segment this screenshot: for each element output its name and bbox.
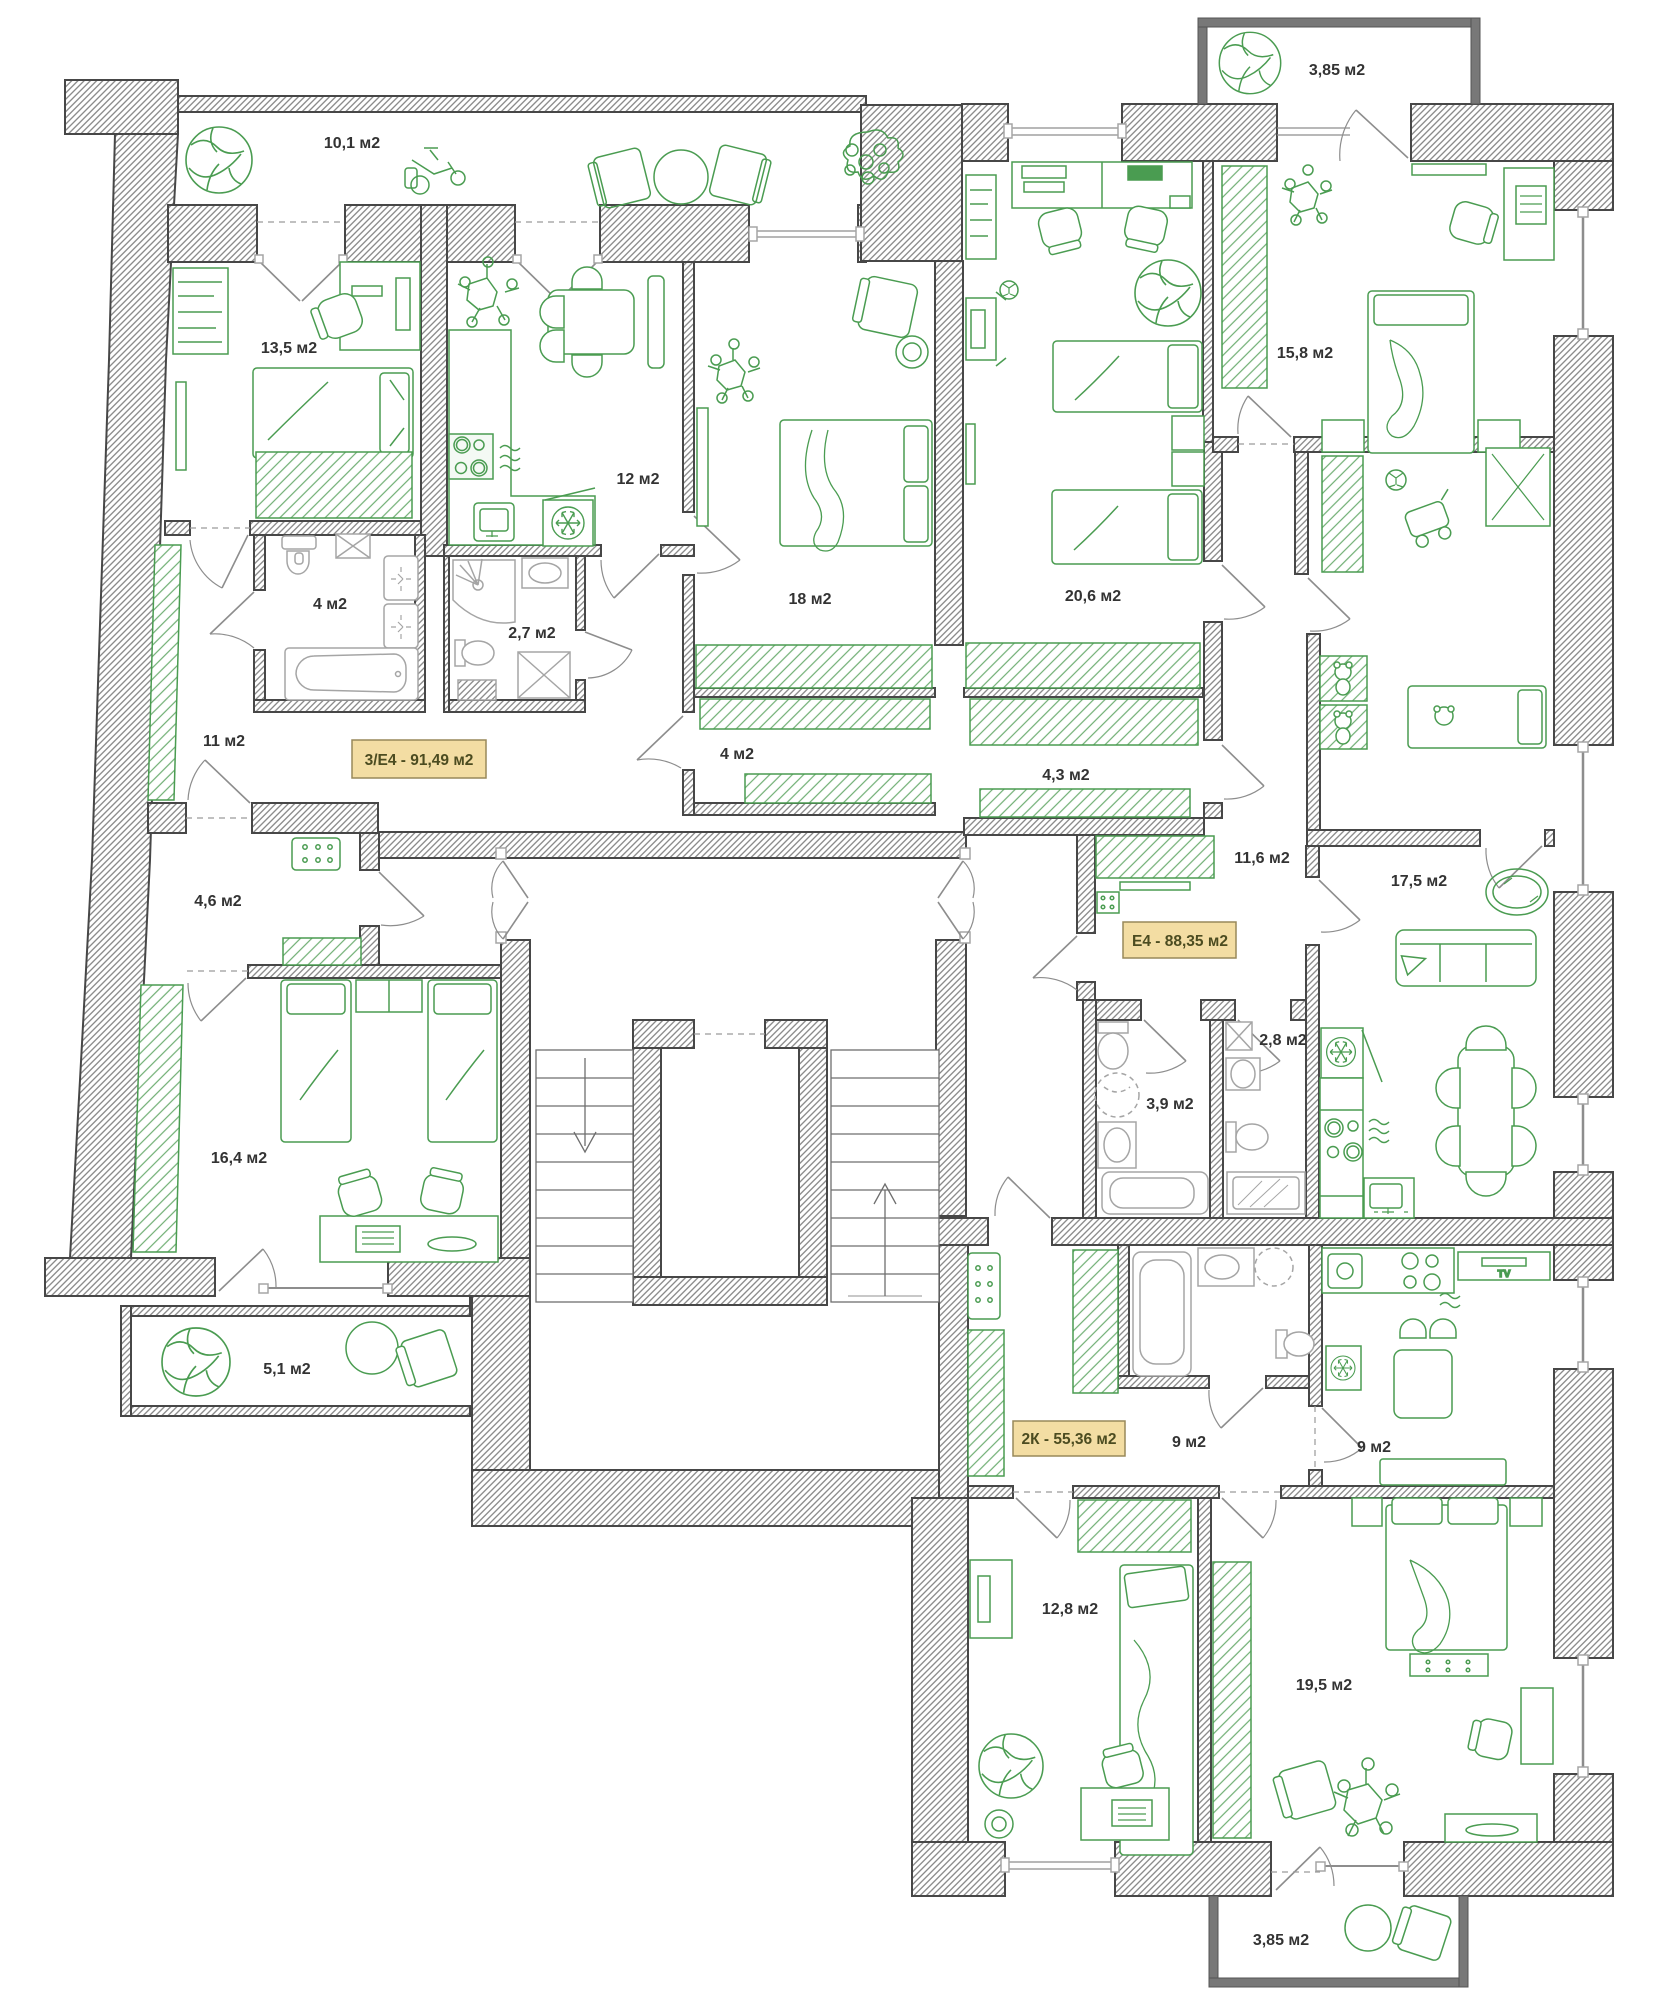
svg-text:9 м2: 9 м2	[1357, 1439, 1391, 1456]
svg-text:2К - 55,36 м2: 2К - 55,36 м2	[1021, 1431, 1116, 1448]
svg-text:3,9 м2: 3,9 м2	[1146, 1096, 1194, 1113]
svg-text:9 м2: 9 м2	[1172, 1434, 1206, 1451]
svg-text:12,8 м2: 12,8 м2	[1042, 1601, 1098, 1618]
svg-text:4,3 м2: 4,3 м2	[1042, 767, 1090, 784]
svg-text:3/Е4 - 91,49 м2: 3/Е4 - 91,49 м2	[365, 752, 474, 769]
svg-text:Е4 - 88,35 м2: Е4 - 88,35 м2	[1132, 933, 1228, 950]
svg-text:19,5 м2: 19,5 м2	[1296, 1677, 1352, 1694]
svg-text:11,6 м2: 11,6 м2	[1234, 850, 1290, 867]
svg-text:4,6 м2: 4,6 м2	[194, 893, 242, 910]
svg-text:2,7 м2: 2,7 м2	[508, 625, 556, 642]
svg-text:12 м2: 12 м2	[617, 471, 660, 488]
svg-text:3,85 м2: 3,85 м2	[1253, 1932, 1309, 1949]
svg-text:TV: TV	[1498, 1269, 1511, 1280]
svg-text:4 м2: 4 м2	[313, 596, 347, 613]
svg-text:17,5 м2: 17,5 м2	[1391, 873, 1447, 890]
svg-text:10,1 м2: 10,1 м2	[324, 135, 380, 152]
svg-text:13,5 м2: 13,5 м2	[261, 340, 317, 357]
svg-text:4 м2: 4 м2	[720, 746, 754, 763]
svg-text:16,4 м2: 16,4 м2	[211, 1150, 267, 1167]
svg-text:2,8 м2: 2,8 м2	[1259, 1032, 1307, 1049]
svg-text:18 м2: 18 м2	[789, 591, 832, 608]
svg-text:5,1 м2: 5,1 м2	[263, 1361, 311, 1378]
svg-text:15,8 м2: 15,8 м2	[1277, 345, 1333, 362]
svg-text:20,6 м2: 20,6 м2	[1065, 588, 1121, 605]
svg-text:3,85 м2: 3,85 м2	[1309, 62, 1365, 79]
svg-text:11 м2: 11 м2	[203, 733, 245, 750]
